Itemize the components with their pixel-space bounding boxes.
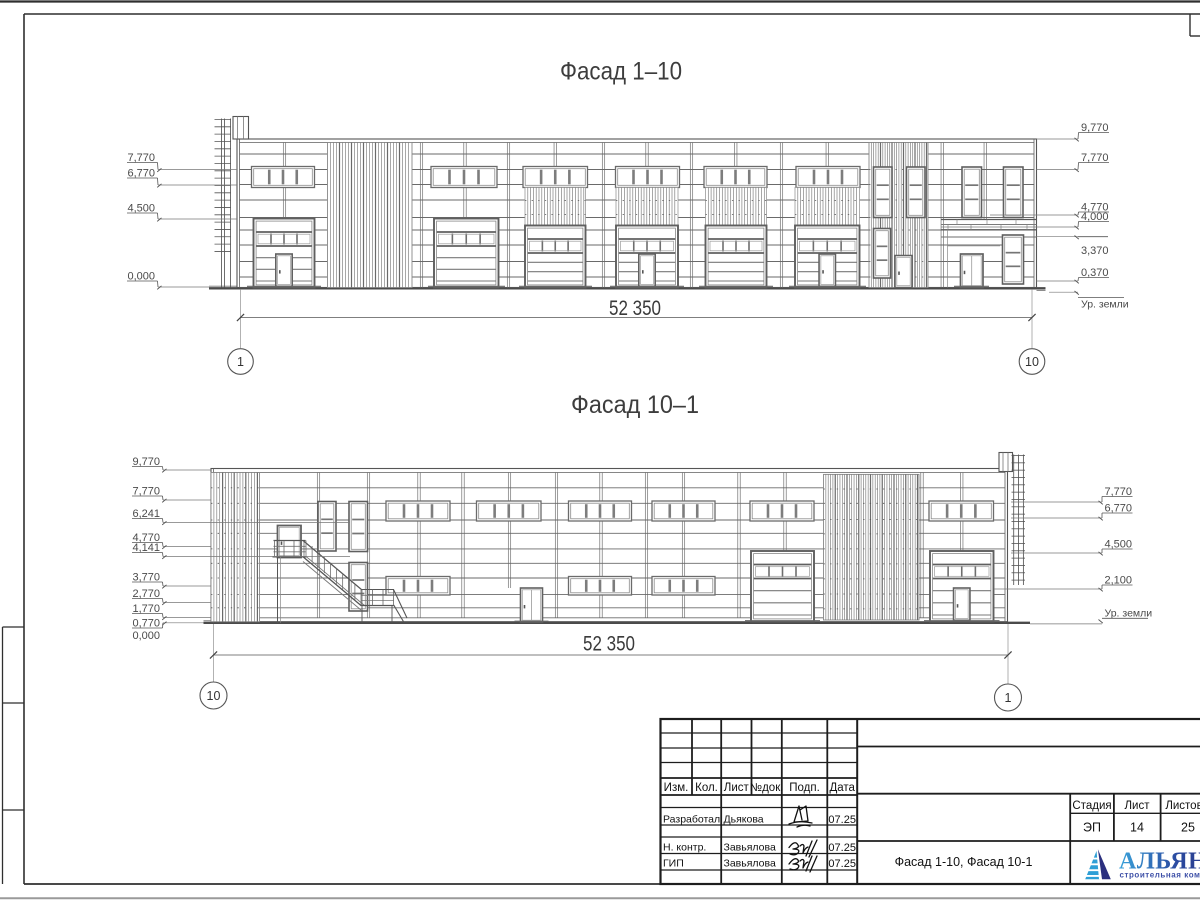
- svg-text:Разработал: Разработал: [663, 814, 720, 826]
- svg-text:Н. контр.: Н. контр.: [663, 842, 706, 854]
- svg-text:10: 10: [1025, 355, 1039, 369]
- svg-text:Лист: Лист: [724, 782, 750, 794]
- svg-text:52 350: 52 350: [583, 633, 635, 656]
- svg-text:№док.: №док.: [750, 782, 784, 794]
- svg-text:07.25: 07.25: [828, 842, 856, 854]
- svg-text:52 350: 52 350: [609, 297, 661, 320]
- svg-text:0,000: 0,000: [132, 630, 160, 642]
- svg-text:14: 14: [1130, 821, 1144, 835]
- svg-text:07.25: 07.25: [828, 858, 856, 870]
- svg-text:1: 1: [1005, 691, 1012, 705]
- svg-text:Дьякова: Дьякова: [724, 814, 764, 826]
- svg-text:3,370: 3,370: [1081, 245, 1109, 257]
- svg-text:Кол.: Кол.: [695, 782, 718, 794]
- svg-text:07.25: 07.25: [828, 814, 856, 826]
- svg-text:Завьялова: Завьялова: [724, 842, 776, 854]
- svg-text:Завьялова: Завьялова: [724, 858, 776, 870]
- svg-text:Ур. земли: Ур. земли: [1081, 299, 1129, 311]
- svg-text:Стадия: Стадия: [1072, 800, 1111, 812]
- svg-text:1: 1: [237, 355, 244, 369]
- svg-text:Ур. земли: Ур. земли: [1105, 608, 1153, 620]
- svg-text:строительная компания: строительная компания: [1120, 871, 1200, 880]
- svg-text:Листов: Листов: [1165, 800, 1200, 812]
- svg-text:Дата: Дата: [829, 782, 855, 794]
- svg-text:Лист: Лист: [1125, 800, 1151, 812]
- svg-text:10: 10: [207, 689, 221, 703]
- svg-text:25: 25: [1181, 821, 1195, 835]
- svg-text:Фасад 10–1: Фасад 10–1: [571, 391, 699, 419]
- svg-text:Подп.: Подп.: [789, 782, 820, 794]
- svg-text:Фасад 1–10: Фасад 1–10: [560, 58, 682, 86]
- svg-text:ГИП: ГИП: [663, 858, 684, 870]
- svg-text:Фасад 1-10, Фасад 10-1: Фасад 1-10, Фасад 10-1: [895, 855, 1033, 869]
- svg-text:Изм.: Изм.: [664, 782, 689, 794]
- svg-text:ЭП: ЭП: [1083, 821, 1101, 835]
